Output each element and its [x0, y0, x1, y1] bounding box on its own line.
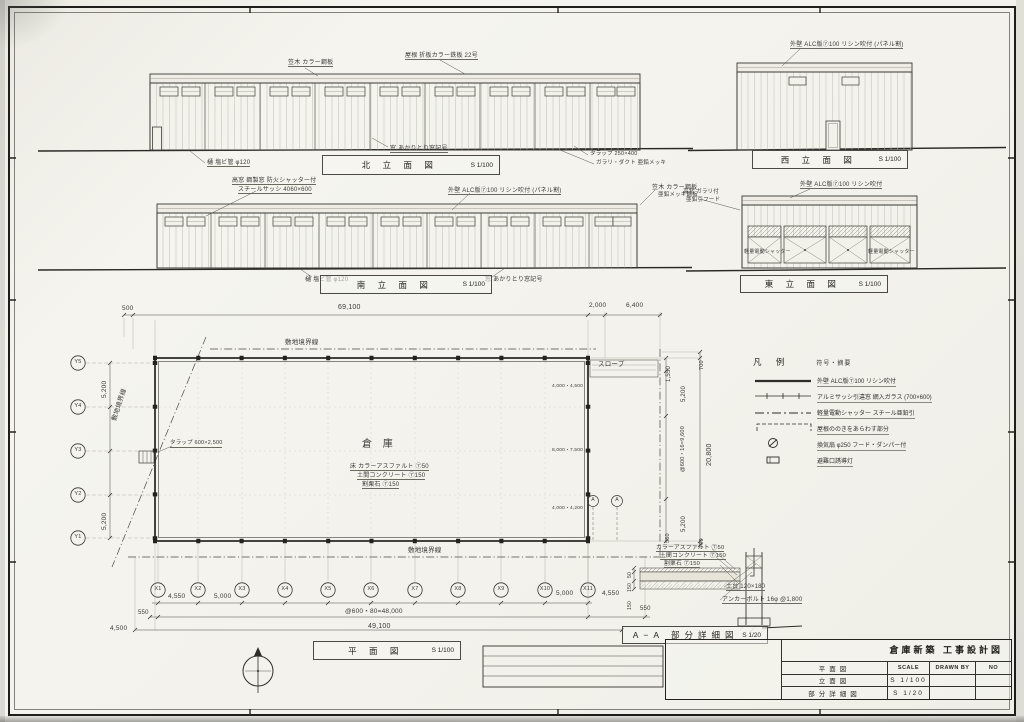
legend-title: 凡 例 [753, 356, 790, 368]
legend-row-text: 屋根ののきをあらわす部分 [817, 424, 889, 435]
legend-row: 換気扇 φ250 フード・ダンパー付 [753, 437, 985, 453]
legend: 凡 例 符号・摘要 外壁 ALC版⑦100 リシン吹付 アルミサッシ引違窓 網入… [753, 356, 985, 469]
no-cell [975, 686, 1011, 699]
legend-subtitle: 符号・摘要 [816, 358, 851, 367]
sheet-name-cell: 立面図 [782, 674, 887, 687]
legend-row: 軽量電動シャッター スチール亜鉛引 [753, 405, 985, 421]
drawn-by-cell [929, 686, 975, 699]
legend-row-text: 外壁 ALC版⑦100 リシン吹付 [817, 376, 896, 387]
west-elevation-drawing [688, 49, 1006, 151]
south-elevation-drawing [38, 190, 692, 277]
blank-notes-table [483, 646, 663, 687]
title-block-main: 倉庫新築 工事設計図 平面図 SCALE DRAWN BY NO 立面図 S 1… [782, 640, 1011, 699]
legend-row: 屋根ののきをあらわす部分 [753, 421, 985, 437]
project-title: 倉庫新築 工事設計図 [782, 640, 1011, 661]
no-header-cell: NO [975, 661, 1011, 674]
north-elevation-drawing [38, 60, 693, 164]
legend-row: 外壁 ALC版⑦100 リシン吹付 [753, 373, 985, 389]
legend-row: 避難口誘導灯 [753, 453, 985, 469]
sheet-index-table: 平面図 SCALE DRAWN BY NO 立面図 S 1/100 部分詳細図 … [782, 661, 1011, 699]
title-block: 倉庫新築 工事設計図 平面図 SCALE DRAWN BY NO 立面図 S 1… [665, 639, 1012, 700]
sheet-scale-cell: S 1/100 [887, 674, 929, 687]
sheet-name-cell: 部分詳細図 [782, 686, 887, 699]
legend-row-text: 軽量電動シャッター スチール亜鉛引 [817, 408, 915, 419]
title-block-blank-cell [666, 640, 782, 699]
blueprint-sheet: 笠木 カラー鋼板屋根 折板カラー鉄板 22号樋 塩ビ管 φ120窓 あかりとり窓… [0, 0, 1024, 722]
legend-row-text: アルミサッシ引違窓 網入ガラス (700×600) [817, 392, 932, 403]
legend-symbol-exit-light-icon [753, 452, 817, 470]
no-cell [975, 674, 1011, 687]
scale-header-cell: SCALE [887, 661, 929, 674]
east-elevation-drawing [686, 189, 1006, 271]
sheet-name-cell: 平面図 [782, 661, 887, 674]
legend-row: アルミサッシ引違窓 網入ガラス (700×600) [753, 389, 985, 405]
north-arrow-compass [243, 647, 273, 693]
drawn-by-header-cell: DRAWN BY [929, 661, 975, 674]
drawn-by-cell [929, 674, 975, 687]
legend-row-text: 換気扇 φ250 フード・ダンパー付 [817, 440, 906, 451]
legend-header: 凡 例 符号・摘要 [753, 356, 985, 368]
legend-row-text: 避難口誘導灯 [817, 456, 853, 467]
plan-drawing [71, 312, 702, 632]
detail-section-drawing [632, 548, 802, 634]
sheet-scale-cell: S 1/20 [887, 686, 929, 699]
